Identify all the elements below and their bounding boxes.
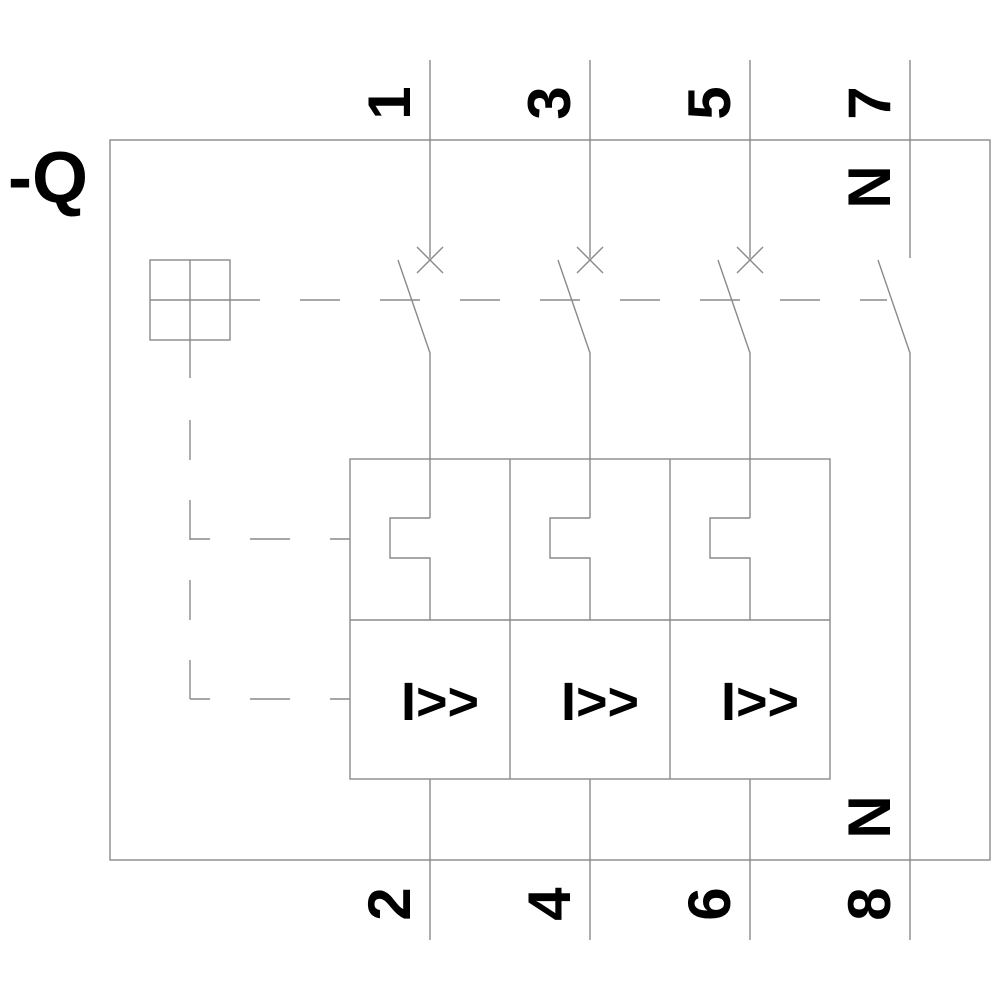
pole-1-switch-blade [398, 260, 430, 518]
terminal-label-6: 6 [676, 887, 743, 920]
device-designation-label: -Q [8, 138, 88, 218]
magnetic-trip-label-3: I>> [721, 672, 799, 732]
magnetic-trip-label-1: I>> [401, 672, 479, 732]
pole-3 [710, 60, 763, 940]
pole-1-latch-symbol [390, 518, 430, 620]
circuit-breaker-schematic: -Q [0, 0, 1000, 1000]
pole-1 [390, 60, 443, 940]
pole-3-switch-blade [718, 260, 750, 518]
terminal-label-8: 8 [836, 887, 903, 920]
terminal-label-1: 1 [356, 86, 423, 119]
enclosure-frame [110, 140, 990, 860]
terminal-label-2: 2 [356, 887, 423, 920]
terminal-label-n-bottom: N [836, 795, 903, 838]
schematic-canvas: -Q [0, 0, 1000, 1000]
terminal-label-5: 5 [676, 86, 743, 119]
pole-2-latch-symbol [550, 518, 590, 620]
pole-3-latch-symbol [710, 518, 750, 620]
terminal-label-4: 4 [516, 887, 583, 921]
pole-2-switch-blade [558, 260, 590, 518]
magnetic-trip-label-2: I>> [561, 672, 639, 732]
terminal-label-7: 7 [836, 86, 903, 119]
pole-2 [550, 60, 603, 940]
mechanical-linkage [190, 300, 887, 699]
operator-mechanism-icon [150, 260, 230, 340]
terminal-label-3: 3 [516, 86, 583, 119]
terminal-label-n-top: N [836, 165, 903, 208]
